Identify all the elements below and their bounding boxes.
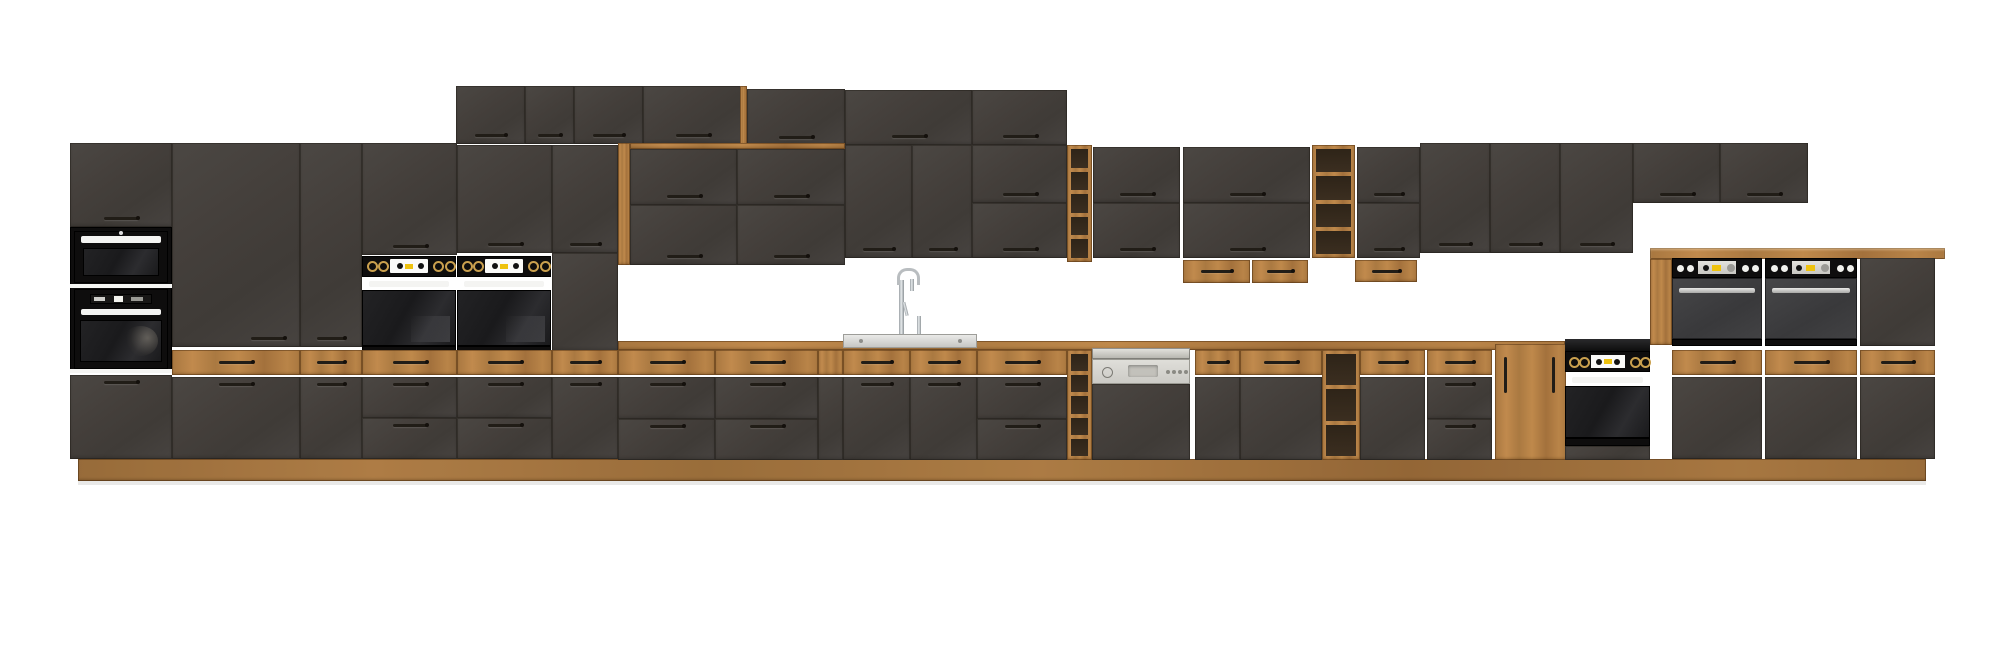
door-handle bbox=[863, 248, 893, 251]
built-in-microwave bbox=[74, 231, 168, 283]
oven-display bbox=[1591, 355, 1625, 368]
base-filler-dark bbox=[818, 377, 843, 460]
hanging-oak-box-3 bbox=[1355, 260, 1417, 282]
top-wall-door-4 bbox=[643, 86, 742, 144]
door-handle bbox=[104, 217, 138, 220]
indicator-dot bbox=[1703, 265, 1709, 271]
wall-door-18 bbox=[1420, 143, 1490, 253]
wall-door-tall-run-end bbox=[552, 145, 618, 253]
wall-door-15 bbox=[1183, 203, 1310, 258]
recess-wall-door-4 bbox=[737, 205, 845, 265]
oak-door-handle bbox=[1504, 357, 1507, 393]
base-door-r1 bbox=[1672, 377, 1762, 459]
oak-drawer-handle bbox=[928, 361, 958, 364]
oak-box-handle bbox=[1372, 270, 1400, 273]
indicator-dot bbox=[1796, 265, 1802, 271]
wall-door-14 bbox=[1183, 147, 1310, 203]
oak-box-handle bbox=[1267, 270, 1292, 273]
oven-control-strip bbox=[1672, 258, 1762, 278]
oven-knob bbox=[1579, 357, 1590, 368]
top-wall-door-3 bbox=[574, 86, 643, 144]
wall-door-above-oven-2 bbox=[457, 145, 552, 253]
drawer-handle bbox=[650, 383, 684, 386]
base-door-l3 bbox=[552, 377, 618, 459]
door-handle bbox=[779, 136, 813, 139]
built-in-single-oven bbox=[1565, 351, 1650, 460]
oven-bottom-trim bbox=[1565, 438, 1650, 446]
oven-handle bbox=[464, 281, 545, 287]
oak-drawer-handle bbox=[861, 361, 891, 364]
door-handle bbox=[570, 243, 600, 246]
oak-drawer-m4 bbox=[1195, 350, 1240, 375]
dishwasher-handle-recess bbox=[1128, 365, 1157, 377]
oven-display bbox=[390, 259, 428, 273]
hanging-oak-box-2 bbox=[1252, 260, 1308, 283]
oak-drawer-l5 bbox=[552, 350, 618, 375]
built-in-oven-tower bbox=[74, 289, 168, 369]
tall-run-side-panel bbox=[552, 253, 618, 351]
shelf-compartment bbox=[1071, 217, 1088, 236]
drawer-handle bbox=[750, 425, 784, 428]
glass-reflection bbox=[411, 316, 450, 342]
shelf-compartment bbox=[1071, 439, 1088, 456]
indicator-dot bbox=[119, 231, 123, 235]
oak-drawer-handle bbox=[317, 361, 345, 364]
base-open-shelf-2 bbox=[1322, 350, 1360, 460]
door-handle bbox=[1660, 193, 1694, 196]
door-handle bbox=[1230, 193, 1264, 196]
wall-open-shelf-1 bbox=[1067, 145, 1092, 262]
recess-wall-door-3 bbox=[630, 205, 737, 265]
oven-door-glass bbox=[457, 290, 551, 346]
dishwasher-power-button bbox=[1102, 367, 1113, 378]
indicator-dot bbox=[492, 263, 498, 269]
base-drawers-m7 bbox=[1427, 377, 1492, 460]
oak-drawer-handle bbox=[650, 361, 684, 364]
shelf-compartment bbox=[1071, 418, 1088, 435]
door-handle bbox=[104, 381, 138, 384]
wall-door-20 bbox=[1560, 143, 1633, 253]
oven-handle bbox=[81, 309, 162, 315]
base-door-m6 bbox=[1360, 377, 1425, 460]
shelf-compartment bbox=[1071, 194, 1088, 213]
oven-door-glass bbox=[80, 320, 163, 362]
wall-door-13 bbox=[1093, 203, 1180, 258]
oak-drawer-handle bbox=[219, 361, 253, 364]
indicator-dot bbox=[1677, 265, 1684, 272]
oak-drawer-l4 bbox=[457, 350, 552, 375]
base-drawer-upper bbox=[362, 377, 457, 418]
built-in-wall-oven-right-2 bbox=[1765, 258, 1857, 346]
base-drawer-lower bbox=[1427, 419, 1492, 460]
shelf-compartment bbox=[1316, 231, 1351, 254]
door-handle bbox=[774, 255, 808, 258]
top-row-oak-step-edge bbox=[740, 86, 747, 146]
shelf-compartment bbox=[1071, 396, 1088, 413]
oven-door bbox=[1765, 278, 1857, 339]
wall-door-17 bbox=[1357, 203, 1420, 258]
indicator-dot bbox=[1172, 370, 1176, 374]
wall-door-9 bbox=[912, 145, 972, 258]
oak-drawer-sink-1 bbox=[843, 350, 910, 375]
door-handle bbox=[1509, 243, 1541, 246]
tall-oven-tower-top-door bbox=[70, 143, 172, 227]
door-handle bbox=[1580, 243, 1613, 246]
display-timer bbox=[1806, 265, 1815, 271]
door-handle bbox=[1230, 248, 1264, 251]
base-drawer-upper bbox=[715, 377, 818, 419]
microwave-handle bbox=[81, 236, 162, 243]
oven-display bbox=[1792, 261, 1831, 274]
oak-drawer-l2 bbox=[300, 350, 362, 375]
oak-box-handle bbox=[1201, 270, 1231, 273]
display-timer bbox=[500, 264, 508, 269]
microwave-oven-separator bbox=[70, 284, 172, 288]
base-drawers-m3 bbox=[977, 377, 1067, 460]
base-drawer-lower bbox=[362, 418, 457, 459]
door-handle bbox=[1120, 248, 1154, 251]
door-handle bbox=[488, 243, 522, 246]
toe-kick-shadow bbox=[78, 481, 1926, 485]
oven-knob bbox=[473, 261, 484, 272]
wall-door-11 bbox=[972, 203, 1067, 258]
oak-drawer-l3 bbox=[362, 350, 457, 375]
sink-base-door-2 bbox=[910, 377, 977, 460]
indicator-dot bbox=[1727, 264, 1735, 272]
door-handle bbox=[317, 383, 345, 386]
base-drawer-upper bbox=[618, 377, 715, 419]
wall-door-above-oven-1 bbox=[362, 143, 457, 255]
oak-drawer-m7 bbox=[1427, 350, 1492, 375]
indicator-dot bbox=[1752, 265, 1759, 272]
built-in-wall-oven-right-1 bbox=[1672, 258, 1762, 346]
indicator-dot bbox=[418, 263, 424, 269]
oak-drawer-m6 bbox=[1360, 350, 1425, 375]
oven-control-strip bbox=[362, 256, 456, 277]
glass-reflection bbox=[123, 326, 159, 356]
shelf-compartment bbox=[1071, 149, 1088, 168]
wall-door-19 bbox=[1490, 143, 1560, 253]
oven-knob bbox=[528, 261, 539, 272]
base-open-shelf-1 bbox=[1067, 350, 1092, 460]
shelf-compartment bbox=[1071, 375, 1088, 392]
shelf-compartment bbox=[1071, 172, 1088, 191]
oven-control-strip bbox=[1565, 351, 1650, 372]
shelf-compartment bbox=[1326, 425, 1356, 456]
base-drawer-lower bbox=[977, 419, 1067, 460]
faucet-arc bbox=[897, 268, 920, 285]
indicator-dot bbox=[1614, 359, 1620, 365]
oven-knob bbox=[378, 261, 389, 272]
indicator-dot bbox=[1781, 265, 1788, 272]
door-handle bbox=[593, 134, 624, 137]
recess-wall-door-1 bbox=[630, 149, 737, 205]
oven-knob bbox=[433, 261, 444, 272]
door-handle bbox=[1374, 193, 1402, 196]
wall-door-8 bbox=[845, 145, 912, 258]
base-drawer-lower bbox=[715, 419, 818, 460]
dishwasher-worktop bbox=[1092, 348, 1190, 359]
door-handle bbox=[676, 134, 710, 137]
oven-knob bbox=[462, 261, 473, 272]
door-handle bbox=[667, 195, 701, 198]
wall-door-16 bbox=[1357, 147, 1420, 203]
indicator-dot bbox=[1596, 359, 1602, 365]
indicator-dot bbox=[397, 263, 403, 269]
display-timer bbox=[405, 264, 413, 269]
base-drawers-l2 bbox=[457, 377, 552, 459]
oven-bottom-trim bbox=[1672, 339, 1762, 346]
base-drawers-m1 bbox=[618, 377, 715, 460]
door-handle bbox=[570, 383, 600, 386]
recess-oak-lining-left bbox=[618, 143, 630, 265]
oak-drawer-handle bbox=[1378, 361, 1407, 364]
base-drawer-lower bbox=[457, 418, 552, 459]
oak-drawer-handle bbox=[1207, 361, 1227, 364]
oak-drawer-l1 bbox=[172, 350, 300, 375]
oak-base-cabinet bbox=[1495, 344, 1566, 460]
oven-handle bbox=[369, 281, 450, 287]
right-bank-top-door bbox=[1860, 258, 1935, 346]
base-drawer-upper bbox=[977, 377, 1067, 419]
drawer-handle bbox=[393, 424, 427, 427]
indicator-dot bbox=[1178, 370, 1182, 374]
oven-display bbox=[90, 294, 152, 304]
kitchen-sink bbox=[843, 334, 977, 348]
oven-bottom-trim bbox=[1765, 339, 1857, 346]
door-handle bbox=[1120, 193, 1154, 196]
door-handle bbox=[1003, 135, 1037, 138]
oven-handle bbox=[1679, 288, 1755, 293]
indicator-dot bbox=[1771, 265, 1778, 272]
drawer-handle bbox=[1445, 383, 1474, 386]
oven-handle bbox=[1572, 377, 1643, 383]
drawer-handle bbox=[488, 383, 522, 386]
door-handle bbox=[892, 135, 926, 138]
base-drawer-lower bbox=[618, 419, 715, 460]
door-handle bbox=[1003, 248, 1037, 251]
display-timer bbox=[1604, 359, 1611, 364]
indicator-dot bbox=[1847, 265, 1854, 272]
wall-door-12 bbox=[1093, 147, 1180, 203]
display-timer bbox=[1712, 265, 1721, 271]
base-door-l2 bbox=[300, 377, 362, 459]
oak-filler bbox=[818, 350, 843, 375]
hanging-oak-box-1 bbox=[1183, 260, 1250, 283]
shelf-compartment bbox=[1316, 204, 1351, 227]
microwave-window bbox=[83, 248, 158, 276]
tall-pantry-door bbox=[172, 143, 300, 347]
drawer-handle bbox=[1005, 383, 1039, 386]
dishwasher-furniture-panel bbox=[1092, 384, 1190, 460]
wall-door-10 bbox=[972, 145, 1067, 203]
oven-handle bbox=[1772, 288, 1849, 293]
black-cooktop-strip bbox=[1565, 339, 1650, 351]
tall-pantry-door-narrow bbox=[300, 143, 362, 347]
oven-lower-drawer bbox=[1565, 446, 1650, 460]
shelf-compartment bbox=[1071, 354, 1088, 371]
dishwasher-control-panel bbox=[1092, 359, 1190, 384]
shelf-compartment bbox=[1071, 239, 1088, 258]
wall-open-shelf-2 bbox=[1312, 145, 1355, 258]
oak-drawer-m2 bbox=[715, 350, 818, 375]
shelf-compartment bbox=[1316, 149, 1351, 172]
door-handle bbox=[538, 134, 560, 137]
semi-integrated-dishwasher bbox=[1092, 348, 1190, 460]
shelf-compartment bbox=[1316, 176, 1351, 199]
right-bank-oak-side-panel bbox=[1650, 259, 1672, 345]
shelf-compartment bbox=[1326, 354, 1356, 385]
oak-drawer-handle bbox=[393, 361, 427, 364]
kitchen-cabinet-render bbox=[0, 0, 2000, 662]
oven-door bbox=[1672, 278, 1762, 339]
oak-drawer-m3 bbox=[977, 350, 1067, 375]
drawer-handle bbox=[750, 383, 784, 386]
sink-base-door-1 bbox=[843, 377, 910, 460]
oven-display bbox=[485, 259, 523, 273]
door-handle bbox=[1374, 248, 1402, 251]
indicator-dot bbox=[1687, 265, 1694, 272]
oven-display bbox=[1698, 261, 1736, 274]
built-in-oven-left-2 bbox=[457, 256, 551, 353]
oven-knob bbox=[367, 261, 378, 272]
door-handle bbox=[774, 195, 808, 198]
base-drawers-l1 bbox=[362, 377, 457, 459]
base-drawer-upper bbox=[457, 377, 552, 418]
oak-drawer-handle bbox=[1264, 361, 1298, 364]
door-handle bbox=[1003, 193, 1037, 196]
indicator-dot bbox=[1742, 265, 1749, 272]
oven-knob bbox=[540, 261, 551, 272]
oak-drawer-r1 bbox=[1672, 350, 1762, 375]
display-segment bbox=[94, 297, 105, 301]
base-door-m5 bbox=[1240, 377, 1322, 460]
oven-control-strip bbox=[457, 256, 551, 277]
display-segment bbox=[131, 297, 143, 301]
door-handle bbox=[928, 383, 958, 386]
oak-drawer-handle bbox=[1445, 361, 1474, 364]
oak-plinth bbox=[78, 459, 1926, 481]
oak-drawer-handle bbox=[1794, 361, 1828, 364]
wall-door-22 bbox=[1720, 143, 1808, 203]
base-door-r2 bbox=[1765, 377, 1857, 459]
oven-knob bbox=[1640, 357, 1651, 368]
oak-drawer-handle bbox=[488, 361, 522, 364]
sink-rim bbox=[843, 334, 977, 348]
base-drawer-upper bbox=[1427, 377, 1492, 419]
top-wall-door-6 bbox=[845, 90, 972, 145]
sink-faucet bbox=[895, 268, 925, 334]
base-drawers-m2 bbox=[715, 377, 818, 460]
faucet-spout-head bbox=[910, 279, 914, 291]
oak-drawer-handle bbox=[570, 361, 600, 364]
display-segment bbox=[114, 296, 124, 302]
door-handle bbox=[929, 248, 956, 251]
soap-dispenser bbox=[917, 316, 921, 334]
base-door-m4 bbox=[1195, 377, 1240, 460]
door-handle bbox=[475, 134, 506, 137]
indicator-dot bbox=[1837, 265, 1844, 272]
oak-drawer-r2 bbox=[1765, 350, 1857, 375]
oak-drawer-r3 bbox=[1860, 350, 1935, 375]
drawer-handle bbox=[1445, 425, 1474, 428]
oak-drawer-handle bbox=[1700, 361, 1734, 364]
tall-oven-tower-bottom-door bbox=[70, 375, 172, 459]
door-handle bbox=[393, 245, 427, 248]
door-handle bbox=[667, 255, 701, 258]
oven-bottom-separator bbox=[70, 369, 172, 373]
shelf-compartment bbox=[1326, 389, 1356, 420]
top-wall-door-7 bbox=[972, 90, 1067, 145]
oak-drawer-handle bbox=[1005, 361, 1039, 364]
glass-reflection bbox=[506, 316, 545, 342]
oven-door-glass bbox=[362, 290, 456, 346]
door-handle bbox=[861, 383, 891, 386]
drawer-handle bbox=[393, 383, 427, 386]
base-door-r3 bbox=[1860, 377, 1935, 459]
top-wall-door-2 bbox=[525, 86, 574, 144]
oak-drawer-m5 bbox=[1240, 350, 1322, 375]
door-handle bbox=[1439, 243, 1471, 246]
base-door-l1 bbox=[172, 377, 300, 459]
oven-control-strip bbox=[1765, 258, 1857, 278]
oak-drawer-handle bbox=[750, 361, 784, 364]
wall-door-21 bbox=[1633, 143, 1720, 203]
drawer-handle bbox=[488, 424, 522, 427]
top-wall-door-5 bbox=[747, 89, 845, 146]
recess-wall-door-2 bbox=[737, 149, 845, 205]
oven-door-glass bbox=[1565, 386, 1650, 438]
door-handle bbox=[251, 337, 285, 340]
oak-drawer-m1 bbox=[618, 350, 715, 375]
oak-door-handle bbox=[1552, 357, 1555, 393]
drawer-handle bbox=[1005, 425, 1039, 428]
drawer-handle bbox=[650, 425, 684, 428]
top-wall-door-1 bbox=[456, 86, 525, 144]
oak-drawer-handle bbox=[1881, 361, 1915, 364]
door-handle bbox=[1747, 193, 1781, 196]
built-in-oven-left-1 bbox=[362, 256, 456, 353]
door-handle bbox=[317, 337, 345, 340]
indicator-dot bbox=[1184, 370, 1188, 374]
indicator-dot bbox=[1821, 264, 1829, 272]
oven-knob bbox=[445, 261, 456, 272]
indicator-dot bbox=[513, 263, 519, 269]
indicator-dot bbox=[1166, 370, 1170, 374]
oak-drawer-sink-2 bbox=[910, 350, 977, 375]
door-handle bbox=[219, 383, 253, 386]
